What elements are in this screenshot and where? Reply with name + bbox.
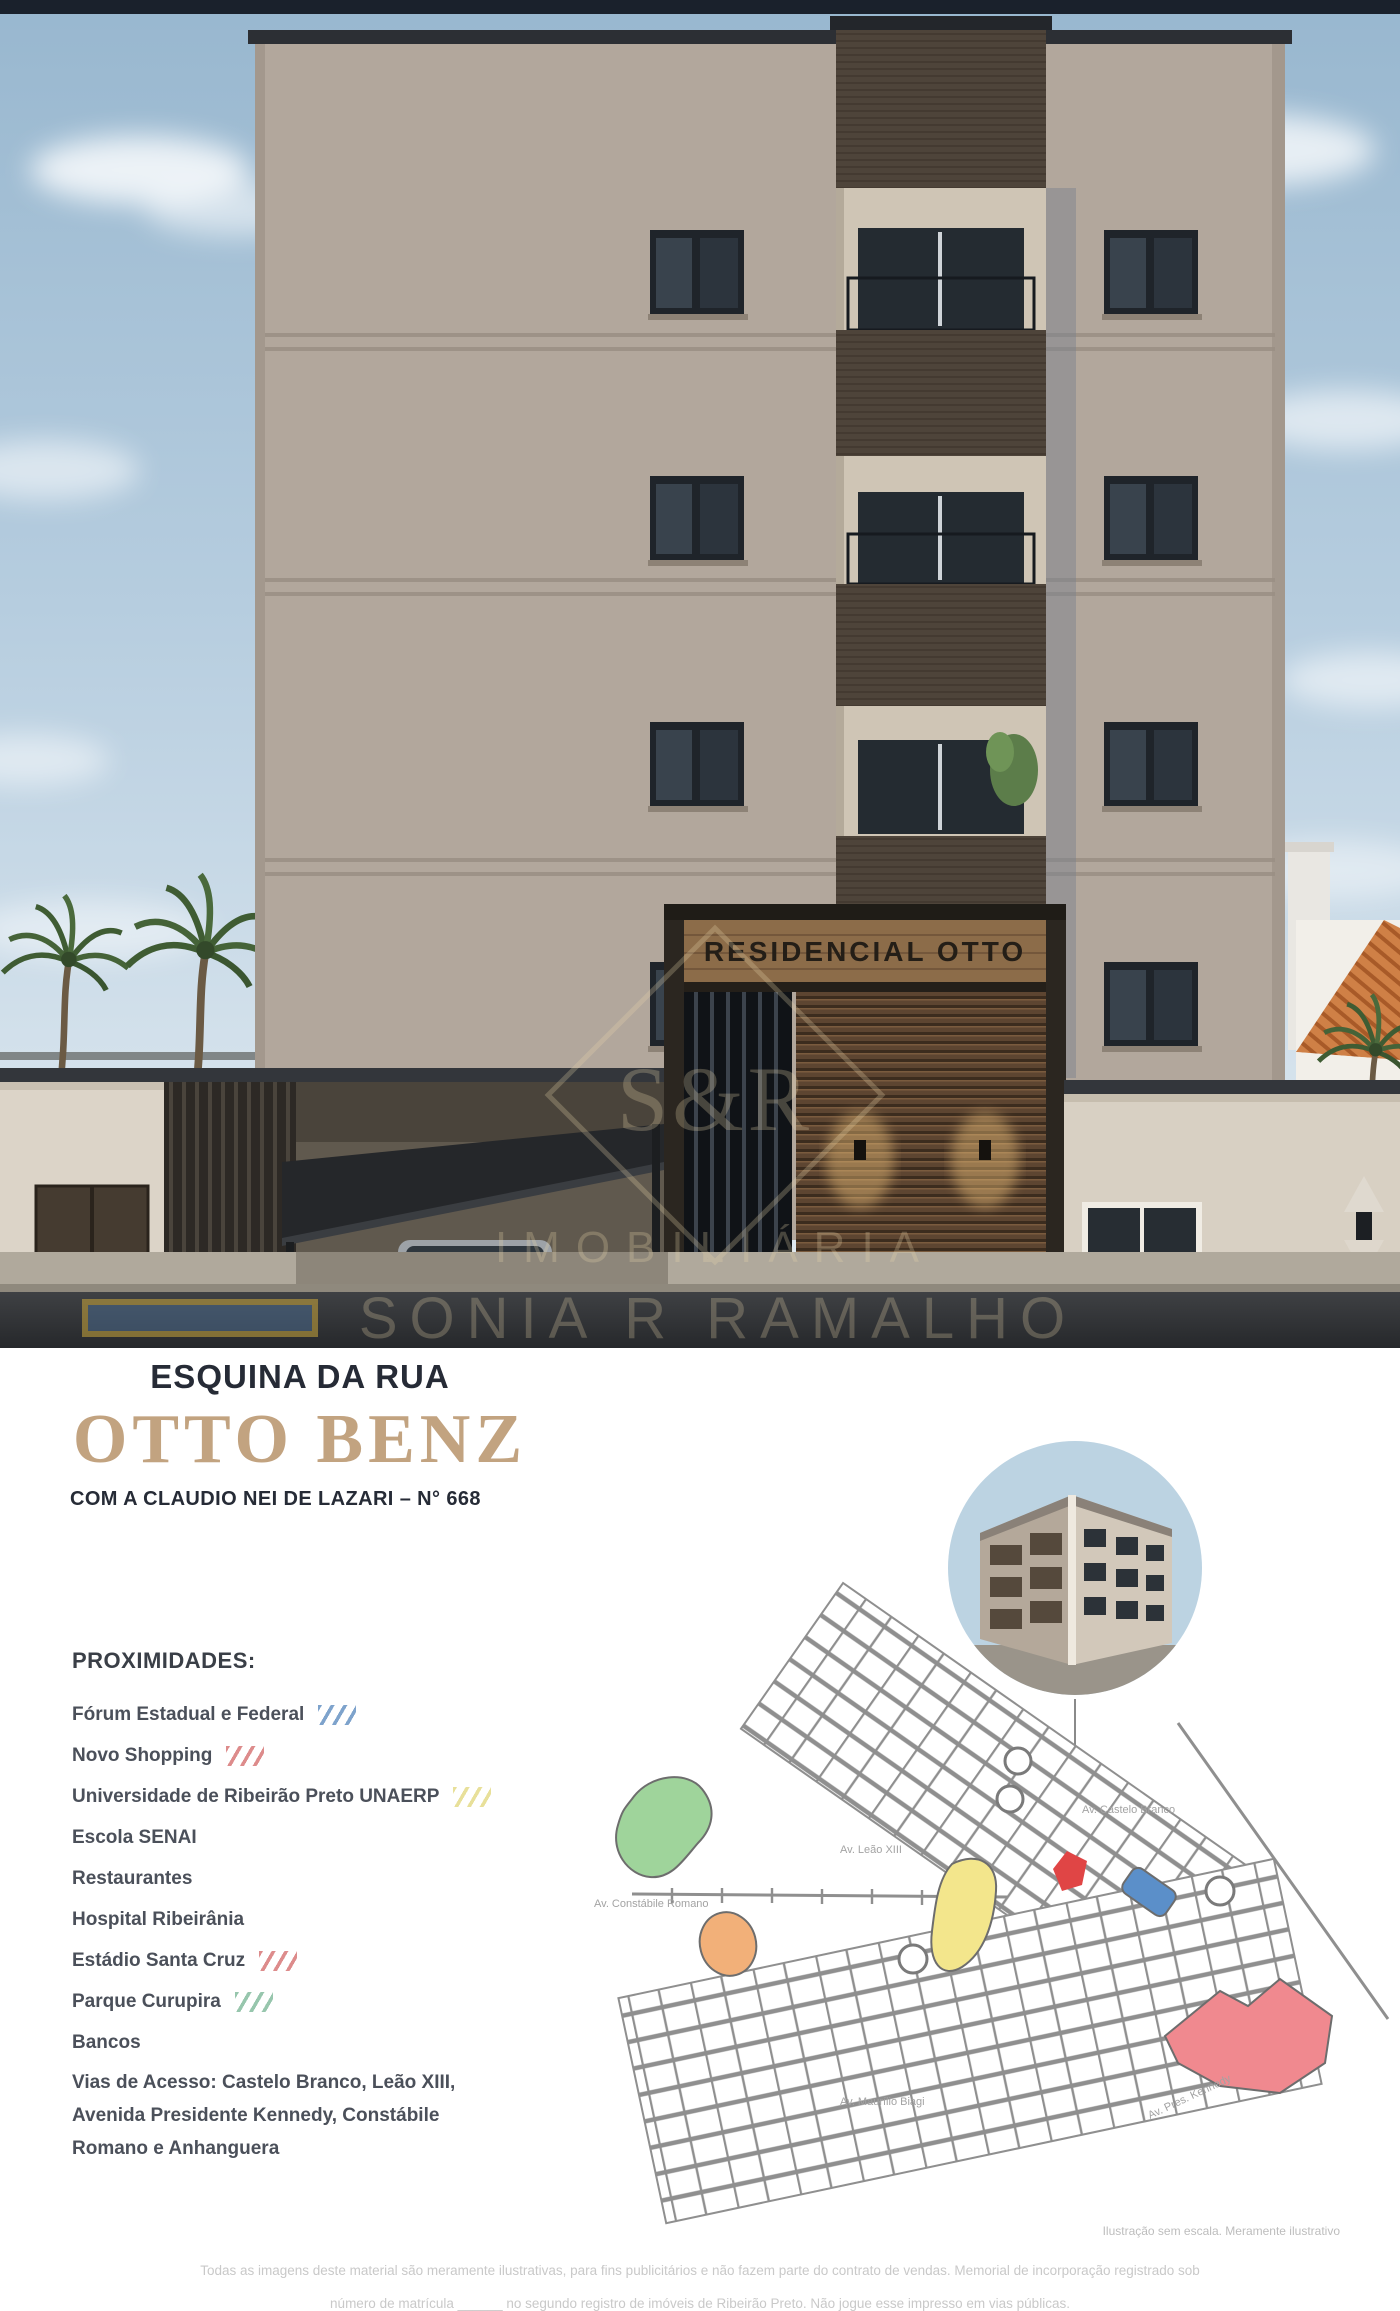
list-item: Parque Curupira [72,1981,542,2022]
slashes-icon [453,1787,491,1807]
headline-top: ESQUINA DA RUA [70,1358,530,1396]
list-item: Fórum Estadual e Federal [72,1694,542,1735]
list-item: Restaurantes [72,1858,542,1899]
list-item: Universidade de Ribeirão Preto UNAERP [72,1776,542,1817]
top-border-strip [0,0,1400,14]
street-label: Av. Maurílio Biagi [840,2096,925,2108]
proximities-block: PROXIMIDADES: Fórum Estadual e Federal N… [72,1648,542,2165]
list-item: Escola SENAI [72,1817,542,1858]
list-item: Estádio Santa Cruz [72,1940,542,1981]
road-marking [85,1302,315,1334]
annex-sconce [1356,1212,1372,1240]
headline-block: ESQUINA DA RUA OTTO BENZ COM A CLAUDIO N… [70,1358,530,1511]
building-photo-inset [944,1437,1206,1699]
list-item: Hospital Ribeirânia [72,1899,542,1940]
disclaimer-line1: Todas as imagens deste material são mera… [0,2263,1400,2278]
building-render-photo: RESIDENCIAL OTTO [0,0,1400,1348]
location-map: Av. Castelo Branco Av. Leão XIII Av. Con… [580,1701,1400,2221]
slashes-icon [235,1992,273,2012]
slashes-icon [318,1705,356,1725]
map-area-green [616,1777,711,1877]
watermark-line2: SONIA R RAMALHO [359,1286,1077,1348]
street-label: Av. Castelo Branco [1082,1804,1175,1816]
real-estate-flyer: RESIDENCIAL OTTO [0,0,1400,2311]
disclaimer-line2: número de matrícula ______ no segundo re… [0,2296,1400,2311]
building-render-scene: RESIDENCIAL OTTO [0,0,1400,1348]
list-item: Novo Shopping [72,1735,542,1776]
list-item-access-roads: Vias de Acesso: Castelo Branco, Leão XII… [72,2063,542,2165]
street-label: Av. Constábile Romano [594,1898,709,1910]
watermark-monogram: S&R [617,1048,813,1150]
slashes-icon [259,1951,297,1971]
flyer-section: ESQUINA DA RUA OTTO BENZ COM A CLAUDIO N… [0,1348,1400,2311]
watermark-line1: IMOBILIÁRIA [495,1223,935,1272]
page-title: OTTO BENZ [70,1400,530,1480]
list-item: Bancos [72,2022,542,2063]
map-footnote: Ilustração sem escala. Meramente ilustra… [1103,2224,1340,2238]
slashes-icon [226,1746,264,1766]
street-label: Av. Leão XIII [840,1844,902,1856]
proximities-list: Fórum Estadual e Federal Novo Shopping U… [72,1694,542,2165]
headline-sub: COM A CLAUDIO NEI DE LAZARI – N° 668 [70,1488,530,1511]
proximities-title: PROXIMIDADES: [72,1648,542,1674]
